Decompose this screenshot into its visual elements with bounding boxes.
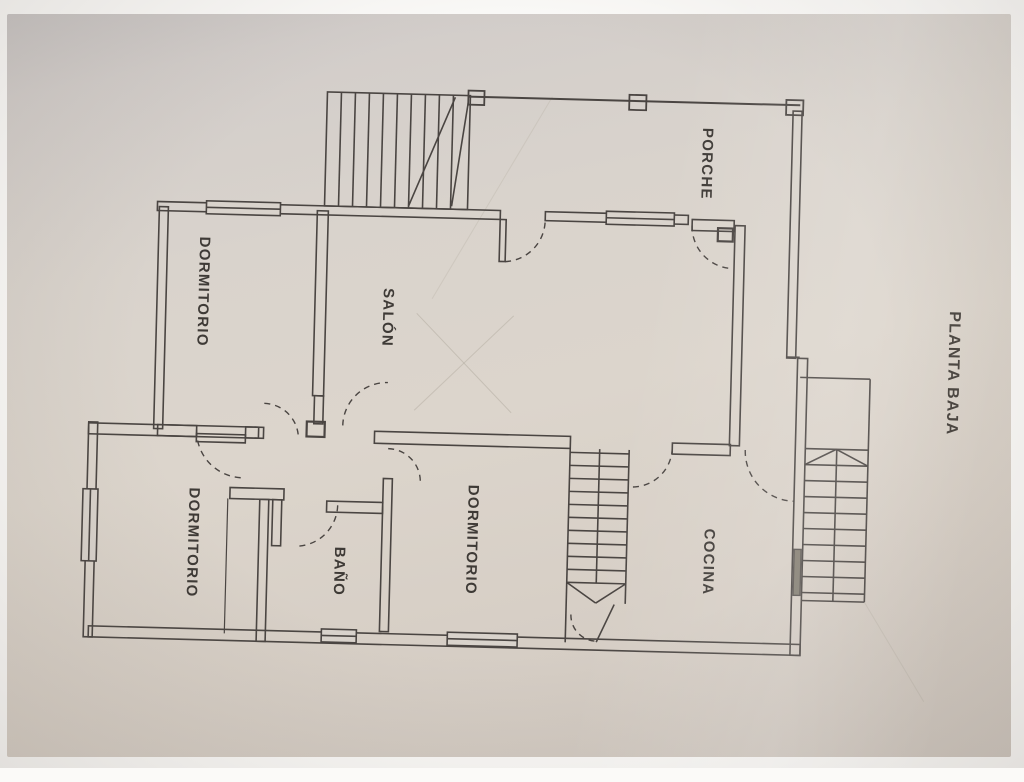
floor-plan: PORCHE SALÓN DORMITORIO DORMITORIO DORMI… xyxy=(0,0,1024,782)
room-label-dormitorio-2: DORMITORIO xyxy=(183,487,203,598)
room-label-cocina: COCINA xyxy=(699,528,718,595)
porch-edge-and-pillars xyxy=(468,91,803,116)
entry-door xyxy=(499,219,545,262)
window-bano-south xyxy=(321,629,356,643)
stairs-top-left xyxy=(325,92,471,210)
stairs-interior xyxy=(565,448,629,643)
hall-walls xyxy=(83,423,570,650)
door-arc-cocina-right xyxy=(744,450,795,501)
porch-corner-door xyxy=(691,220,734,269)
dormitorio-1-salon-divider xyxy=(306,211,330,437)
kitchen-stairs-door xyxy=(793,549,801,595)
window-dormitorio-1 xyxy=(206,201,280,216)
room-label-dormitorio-3: DORMITORIO xyxy=(462,485,482,596)
room-label-bano: BAÑO xyxy=(330,546,348,596)
paper-crease-marks xyxy=(407,93,939,701)
door-arc-dormitorio-1 xyxy=(263,403,299,439)
floor-plan-linework xyxy=(0,0,1024,782)
room-label-porche: PORCHE xyxy=(697,128,716,200)
door-arc-cocina-left xyxy=(631,447,672,488)
door-arc-bano xyxy=(295,504,338,547)
door-arc-stairs xyxy=(570,614,596,641)
window-dormitorio-3-south xyxy=(447,632,517,647)
door-arc-salon xyxy=(343,381,388,426)
south-wall xyxy=(88,626,800,656)
living-porch-divider-wall xyxy=(729,226,745,446)
plan-title: PLANTA BAJA xyxy=(942,311,963,436)
door-arc-dormitorio-3 xyxy=(387,449,421,483)
west-walls xyxy=(83,205,168,639)
window-living-north xyxy=(606,211,674,226)
room-label-salon: SALÓN xyxy=(378,288,397,347)
cocina-north-wall xyxy=(672,443,730,456)
window-dormitorio-2-west xyxy=(81,489,98,561)
room-label-dormitorio-1: DORMITORIO xyxy=(193,236,213,347)
